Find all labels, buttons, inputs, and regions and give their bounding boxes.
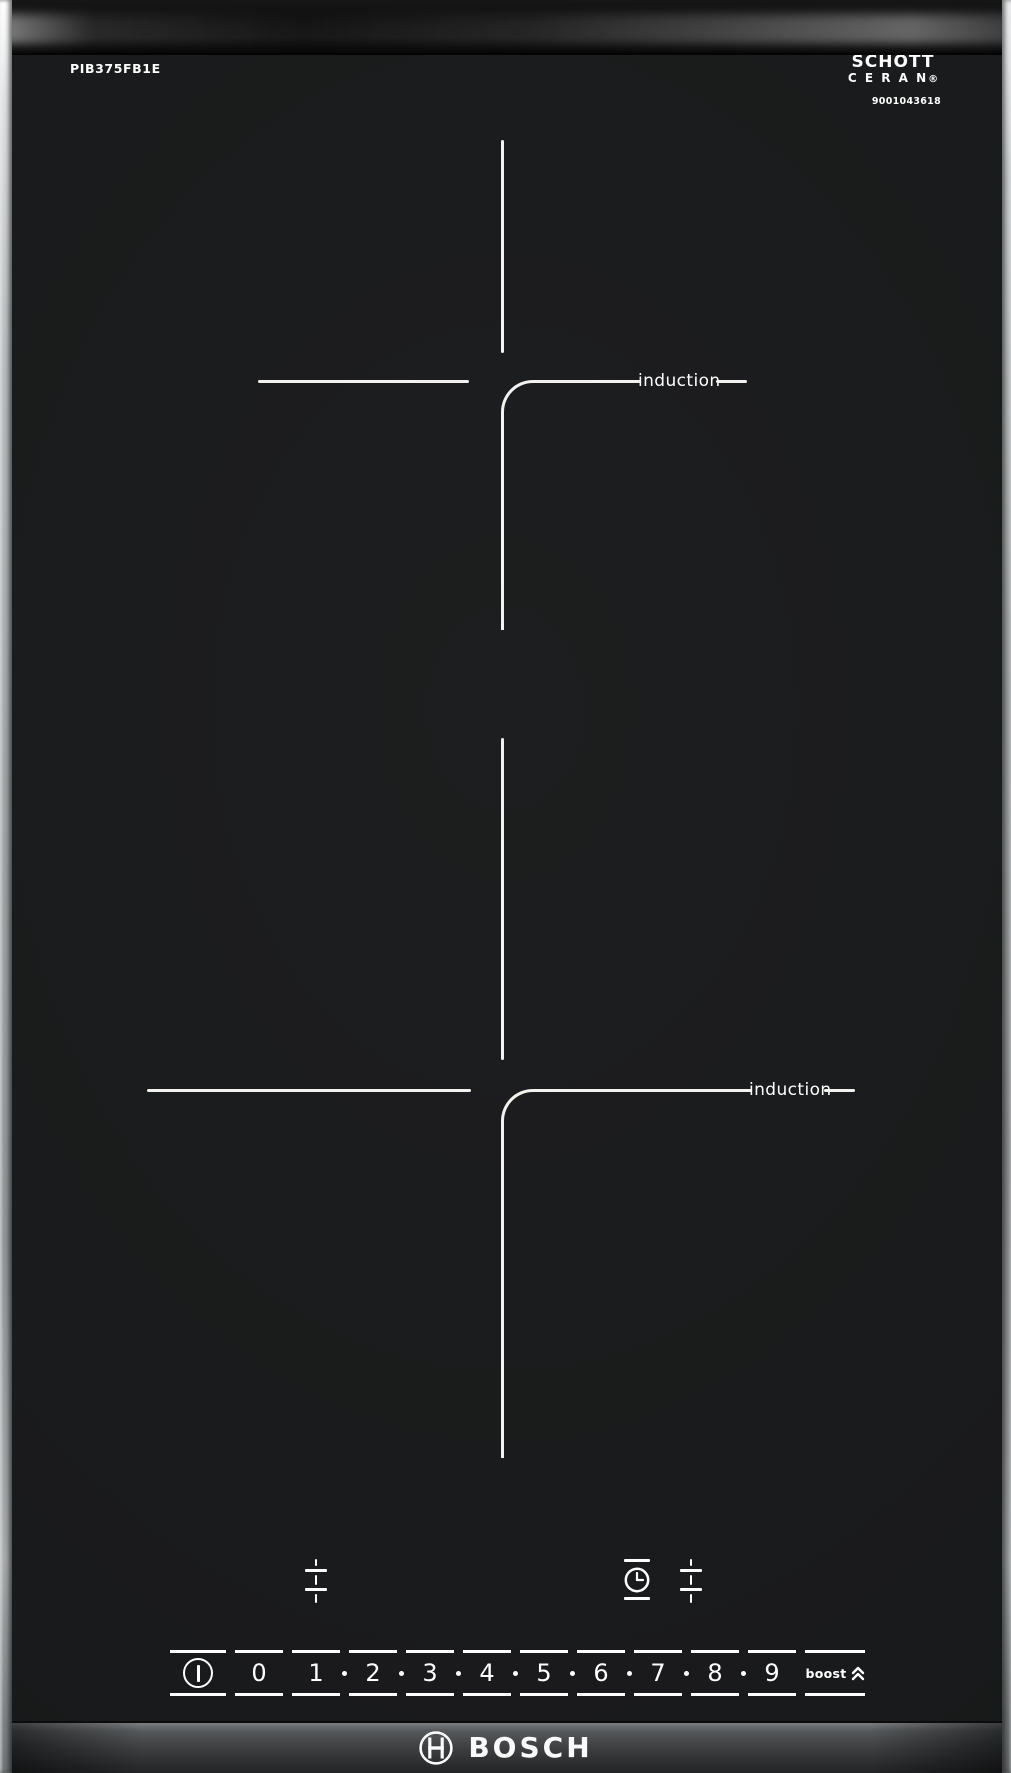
level-key-4[interactable]: 4: [463, 1650, 511, 1696]
power-level-slider[interactable]: 0123456789 boost: [170, 1650, 865, 1696]
level-key-8[interactable]: 8: [691, 1650, 739, 1696]
bevel-reflection: [0, 14, 1011, 44]
zone-rear-left-tick: [258, 380, 469, 383]
level-label: 6: [593, 1659, 608, 1687]
level-label: 9: [764, 1659, 779, 1687]
zone-rear-label: induction: [638, 371, 716, 391]
schott-ceran-logo: SCHOTT C E R A N® 9001043618: [845, 54, 941, 107]
level-label: 2: [365, 1659, 380, 1687]
bosch-symbol-icon: [418, 1730, 454, 1766]
level-separator-dot: [684, 1671, 689, 1676]
product-code: 9001043618: [845, 96, 941, 107]
timer-clock-icon: [624, 1564, 650, 1597]
boost-chevron-icon: [851, 1666, 865, 1681]
top-bevel: [0, 0, 1011, 55]
level-label: 8: [707, 1659, 722, 1687]
level-separator-dot: [342, 1671, 347, 1676]
level-gap: [796, 1650, 805, 1696]
zone-front-corner: [501, 1089, 752, 1458]
level-separator-dot: [456, 1671, 461, 1676]
bosch-wordmark: BOSCH: [468, 1734, 592, 1762]
level-gap: [340, 1650, 349, 1696]
level-gap: [739, 1650, 748, 1696]
ceran-wordmark: C E R A N®: [845, 71, 941, 87]
zone-rear-dash: [716, 380, 747, 383]
level-key-5[interactable]: 5: [520, 1650, 568, 1696]
level-gap: [283, 1650, 292, 1696]
level-separator-dot: [513, 1671, 518, 1676]
level-separator-dot: [399, 1671, 404, 1676]
level-gap: [568, 1650, 577, 1696]
level-separator-dot: [627, 1671, 632, 1676]
level-label: 4: [479, 1659, 494, 1687]
power-icon: [183, 1658, 213, 1688]
level-label: 5: [536, 1659, 551, 1687]
level-label: 3: [422, 1659, 437, 1687]
level-gap: [454, 1650, 463, 1696]
zone-select-right-key[interactable]: [680, 1559, 702, 1603]
level-separator-dot: [741, 1671, 746, 1676]
timer-key[interactable]: [624, 1559, 650, 1600]
boost-key[interactable]: boost: [805, 1650, 865, 1696]
level-gap: [511, 1650, 520, 1696]
level-gap: [682, 1650, 691, 1696]
zone-front-dash: [824, 1089, 855, 1092]
level-key-2[interactable]: 2: [349, 1650, 397, 1696]
schott-wordmark: SCHOTT: [845, 54, 941, 71]
zone-front-label: induction: [749, 1080, 824, 1100]
level-key-7[interactable]: 7: [634, 1650, 682, 1696]
level-label: 0: [251, 1659, 266, 1687]
front-trim-band: BOSCH: [0, 1721, 1011, 1773]
zone-select-left-key[interactable]: [305, 1559, 327, 1603]
model-number: PIB375FB1E: [70, 61, 161, 76]
level-gap: [397, 1650, 406, 1696]
level-key-6[interactable]: 6: [577, 1650, 625, 1696]
power-key[interactable]: [170, 1650, 226, 1696]
level-key-1[interactable]: 1: [292, 1650, 340, 1696]
zone-select-icon: [315, 1559, 318, 1566]
zone-front-top-tick: [501, 738, 504, 1060]
level-key-9[interactable]: 9: [748, 1650, 796, 1696]
registered-mark: ®: [928, 74, 938, 85]
level-separator-dot: [570, 1671, 575, 1676]
induction-hob: PIB375FB1E SCHOTT C E R A N® 9001043618 …: [0, 0, 1011, 1773]
left-trim: [0, 0, 12, 1773]
bosch-logo: BOSCH: [0, 1723, 1011, 1773]
ceramic-glass-surface: PIB375FB1E SCHOTT C E R A N® 9001043618 …: [0, 0, 1011, 1773]
zone-rear-corner: [501, 380, 641, 630]
level-key-3[interactable]: 3: [406, 1650, 454, 1696]
zone-select-icon: [690, 1559, 693, 1566]
level-key-0[interactable]: 0: [235, 1650, 283, 1696]
level-label: 7: [650, 1659, 665, 1687]
right-trim: [1002, 0, 1011, 1773]
zone-front-left-tick: [147, 1089, 471, 1092]
level-keys: 0123456789: [226, 1650, 805, 1696]
zone-rear-top-tick: [501, 140, 504, 353]
level-gap: [226, 1650, 235, 1696]
level-gap: [625, 1650, 634, 1696]
level-label: 1: [308, 1659, 323, 1687]
